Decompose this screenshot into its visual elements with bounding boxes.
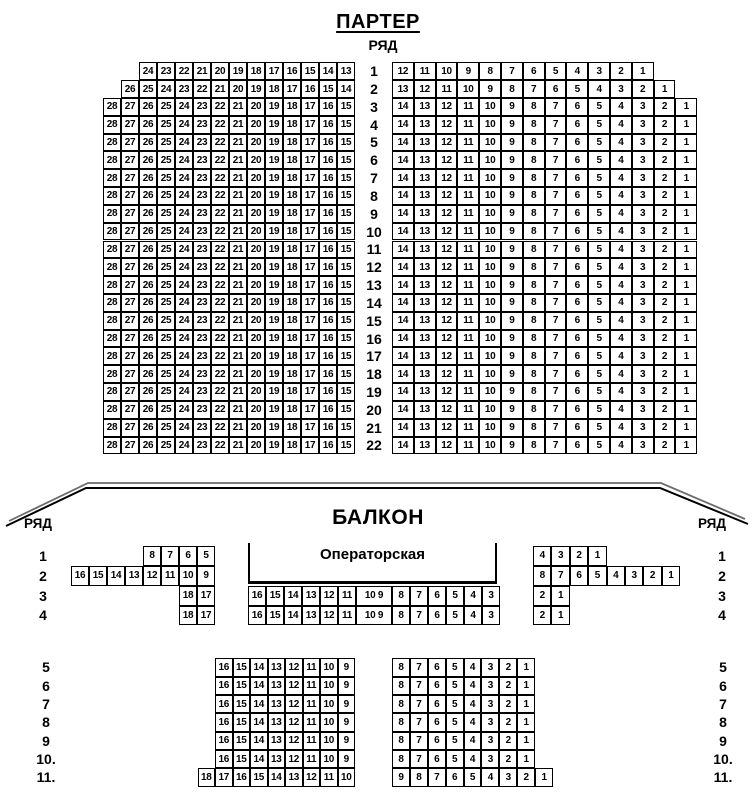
seat[interactable]: 1: [517, 658, 535, 676]
balcony-row-number-left: 9: [26, 732, 66, 750]
seat[interactable]: 3: [499, 768, 517, 786]
seat[interactable]: 7: [551, 566, 569, 586]
seat[interactable]: 9: [338, 750, 356, 768]
seat[interactable]: 18: [179, 586, 197, 606]
seat[interactable]: 8: [392, 677, 410, 695]
seat[interactable]: 13: [268, 732, 286, 750]
seat[interactable]: 12: [285, 658, 303, 676]
seat[interactable]: 1: [535, 768, 553, 786]
seat[interactable]: 1: [662, 566, 680, 586]
operator-booth-label: Операторская: [320, 546, 425, 563]
balcony-row-number-right: 2: [702, 566, 742, 586]
seat[interactable]: 17: [215, 768, 233, 786]
balcony-row-number-left: 1: [23, 546, 63, 566]
seat[interactable]: 5: [446, 713, 464, 731]
seat[interactable]: 9: [197, 566, 215, 586]
seat[interactable]: 4: [464, 658, 482, 676]
seat[interactable]: 5: [446, 750, 464, 768]
seat[interactable]: 5: [446, 658, 464, 676]
stage-divider: [0, 0, 756, 794]
seat[interactable]: 6: [428, 677, 446, 695]
seat[interactable]: 5: [464, 768, 482, 786]
balcony-row-right: 987654321: [392, 768, 553, 786]
seat[interactable]: 14: [250, 658, 268, 676]
seat[interactable]: 1: [517, 713, 535, 731]
seat[interactable]: 11: [303, 658, 321, 676]
seat[interactable]: 15: [233, 713, 251, 731]
operator-booth: Операторская: [248, 543, 497, 584]
seat[interactable]: 3: [481, 658, 499, 676]
balcony-row-number-right: 9: [703, 732, 743, 750]
seat[interactable]: 16: [71, 566, 89, 586]
seat[interactable]: 7: [410, 695, 428, 713]
balcony-row-left: 1817: [179, 586, 215, 606]
seat[interactable]: 16: [215, 695, 233, 713]
seat[interactable]: 3: [481, 750, 499, 768]
seat[interactable]: 13: [268, 658, 286, 676]
seat[interactable]: 15: [233, 677, 251, 695]
seat[interactable]: 1: [588, 546, 606, 566]
seat[interactable]: 14: [250, 695, 268, 713]
seat[interactable]: 13: [268, 695, 286, 713]
balcony-row-left: 161514131211109: [215, 658, 355, 676]
seat[interactable]: 15: [233, 750, 251, 768]
seat[interactable]: 4: [607, 566, 625, 586]
seat[interactable]: 6: [428, 586, 446, 606]
seat[interactable]: 15: [266, 586, 284, 606]
seat[interactable]: 10: [320, 750, 338, 768]
seat[interactable]: 14: [107, 566, 125, 586]
balcony-row-center: 16151413121110 9876543: [248, 586, 500, 606]
seat[interactable]: 8: [392, 713, 410, 731]
seat[interactable]: 1: [551, 586, 569, 606]
seat[interactable]: 15: [233, 695, 251, 713]
seat[interactable]: 6: [428, 732, 446, 750]
seat[interactable]: 9: [338, 695, 356, 713]
seat[interactable]: 16: [215, 750, 233, 768]
balcony-row-right: 87654321: [392, 732, 535, 750]
seat[interactable]: 7: [428, 768, 446, 786]
seat[interactable]: 2: [533, 606, 551, 626]
seat[interactable]: 2: [499, 695, 517, 713]
seat[interactable]: 11: [338, 586, 356, 606]
seat[interactable]: 10: [338, 768, 356, 786]
seat[interactable]: 6: [428, 750, 446, 768]
balcony-row-left: 161514131211109: [71, 566, 215, 586]
seat[interactable]: 10: [320, 713, 338, 731]
balcony-row-number-left: 2: [23, 566, 63, 586]
balcony-row-number-left: 8: [26, 713, 66, 731]
seat[interactable]: 14: [250, 750, 268, 768]
seat[interactable]: 6: [570, 566, 588, 586]
seat[interactable]: 6: [428, 658, 446, 676]
seat[interactable]: 4: [464, 695, 482, 713]
seat[interactable]: 13: [268, 677, 286, 695]
seat[interactable]: 13: [285, 768, 303, 786]
seat[interactable]: 4: [464, 713, 482, 731]
balcony-row-left: 161514131211109: [215, 713, 355, 731]
seat[interactable]: 3: [481, 695, 499, 713]
balcony-row-right: 87654321: [392, 658, 535, 676]
seat[interactable]: 1: [517, 750, 535, 768]
seat[interactable]: 5: [446, 606, 464, 626]
balcony-row-right: 21: [533, 606, 570, 626]
balcony-row-number-right: 11.: [703, 768, 743, 786]
seat[interactable]: 4: [464, 750, 482, 768]
seat[interactable]: 2: [570, 546, 588, 566]
seat[interactable]: 15: [89, 566, 107, 586]
seat[interactable]: 3: [481, 713, 499, 731]
seat[interactable]: 8: [533, 566, 551, 586]
seat[interactable]: 6: [446, 768, 464, 786]
seat[interactable]: 10 9: [356, 586, 392, 606]
seat[interactable]: 5: [588, 566, 606, 586]
seat[interactable]: 6: [179, 546, 197, 566]
seat[interactable]: 17: [197, 606, 215, 626]
seat[interactable]: 11: [161, 566, 179, 586]
seat[interactable]: 1: [517, 677, 535, 695]
balcony-row-left: 181716151413121110: [198, 768, 356, 786]
seat[interactable]: 12: [285, 732, 303, 750]
seat[interactable]: 2: [533, 586, 551, 606]
seat[interactable]: 9: [338, 677, 356, 695]
seat[interactable]: 12: [303, 768, 321, 786]
seat[interactable]: 10 9: [356, 606, 392, 626]
balcony-row-number-left: 3: [23, 586, 63, 606]
seat[interactable]: 16: [248, 606, 266, 626]
seat[interactable]: 9: [338, 658, 356, 676]
seat[interactable]: 2: [499, 750, 517, 768]
seat[interactable]: 12: [320, 586, 338, 606]
balcony-row-number-left: 5: [26, 658, 66, 676]
seat[interactable]: 16: [215, 713, 233, 731]
seat[interactable]: 1: [517, 732, 535, 750]
balcony-row-right: 21: [533, 586, 570, 606]
seat[interactable]: 4: [481, 768, 499, 786]
seat[interactable]: 7: [410, 750, 428, 768]
seat[interactable]: 6: [428, 695, 446, 713]
balcony-row-right: 87654321: [392, 695, 535, 713]
balcony-row-number-right: 7: [703, 695, 743, 713]
seat[interactable]: 10: [179, 566, 197, 586]
seat[interactable]: 12: [285, 695, 303, 713]
seat[interactable]: 13: [268, 713, 286, 731]
balcony-row-number-left: 7: [26, 695, 66, 713]
balcony-row-left: 8765: [143, 546, 215, 566]
seat[interactable]: 12: [143, 566, 161, 586]
seat[interactable]: 13: [302, 606, 320, 626]
seat[interactable]: 1: [551, 606, 569, 626]
seat[interactable]: 14: [250, 677, 268, 695]
seat[interactable]: 1: [517, 695, 535, 713]
seat[interactable]: 11: [303, 750, 321, 768]
seat[interactable]: 7: [410, 586, 428, 606]
seat[interactable]: 12: [285, 750, 303, 768]
seat[interactable]: 5: [446, 677, 464, 695]
seat[interactable]: 8: [392, 695, 410, 713]
seat[interactable]: 11: [303, 677, 321, 695]
seat[interactable]: 7: [410, 658, 428, 676]
seat[interactable]: 9: [338, 713, 356, 731]
balcony-row-left: 161514131211109: [215, 695, 355, 713]
seat[interactable]: 16: [215, 658, 233, 676]
seat[interactable]: 12: [285, 713, 303, 731]
seat[interactable]: 5: [197, 546, 215, 566]
seat[interactable]: 7: [161, 546, 179, 566]
seat[interactable]: 11: [303, 713, 321, 731]
seat[interactable]: 11: [320, 768, 338, 786]
seat[interactable]: 16: [215, 732, 233, 750]
seat[interactable]: 7: [410, 606, 428, 626]
seat[interactable]: 9: [338, 732, 356, 750]
seat[interactable]: 6: [428, 713, 446, 731]
seat[interactable]: 12: [285, 677, 303, 695]
seat[interactable]: 3: [551, 546, 569, 566]
seat[interactable]: 14: [250, 713, 268, 731]
balcony-row-right: 87654321: [392, 750, 535, 768]
balcony-row-right: 87654321: [392, 677, 535, 695]
seat[interactable]: 8: [392, 606, 410, 626]
seat[interactable]: 12: [320, 606, 338, 626]
balcony-row-number-right: 1: [702, 546, 742, 566]
seat[interactable]: 8: [410, 768, 428, 786]
seat[interactable]: 13: [125, 566, 143, 586]
seat[interactable]: 4: [464, 677, 482, 695]
seat[interactable]: 15: [233, 732, 251, 750]
seat[interactable]: 8: [392, 658, 410, 676]
seat[interactable]: 16: [248, 586, 266, 606]
seat[interactable]: 7: [410, 732, 428, 750]
balcony-row-number-left: 10.: [26, 750, 66, 768]
seat[interactable]: 4: [464, 732, 482, 750]
seat[interactable]: 3: [625, 566, 643, 586]
balcony-row-center: 16151413121110 9876543: [248, 606, 500, 626]
seat[interactable]: 9: [392, 768, 410, 786]
balcony-row-left: 161514131211109: [215, 677, 355, 695]
seat[interactable]: 18: [179, 606, 197, 626]
seat[interactable]: 18: [198, 768, 216, 786]
seat[interactable]: 14: [284, 586, 302, 606]
seat[interactable]: 8: [392, 586, 410, 606]
seat[interactable]: 2: [643, 566, 661, 586]
seat[interactable]: 3: [482, 606, 500, 626]
balcony-row-number-left: 6: [26, 677, 66, 695]
seat[interactable]: 17: [197, 586, 215, 606]
seat[interactable]: 4: [464, 586, 482, 606]
seat[interactable]: 15: [250, 768, 268, 786]
seat[interactable]: 10: [320, 677, 338, 695]
balcony-row-right: 87654321: [533, 566, 680, 586]
seat[interactable]: 7: [410, 677, 428, 695]
balcony-row-right: 87654321: [392, 713, 535, 731]
balcony-row-number-right: 5: [703, 658, 743, 676]
balcony-row-left: 161514131211109: [215, 732, 355, 750]
balcony-row-number-right: 4: [702, 606, 742, 626]
balcony-row-left: 1817: [179, 606, 215, 626]
balcony-title: БАЛКОН: [0, 506, 756, 530]
seat[interactable]: 10: [320, 658, 338, 676]
seat[interactable]: 13: [302, 586, 320, 606]
seat[interactable]: 2: [499, 677, 517, 695]
seat[interactable]: 2: [499, 713, 517, 731]
seating-chart: ПАРТЕР РЯД 24232221201918171615141311211…: [0, 0, 756, 794]
seat[interactable]: 11: [338, 606, 356, 626]
seat[interactable]: 13: [268, 750, 286, 768]
seat[interactable]: 2: [517, 768, 535, 786]
seat[interactable]: 10: [320, 732, 338, 750]
seat[interactable]: 8: [143, 546, 161, 566]
balcony-row-left: 161514131211109: [215, 750, 355, 768]
balcony-row-header-right: РЯД: [691, 516, 733, 531]
seat[interactable]: 5: [446, 732, 464, 750]
seat[interactable]: 14: [268, 768, 286, 786]
seat[interactable]: 11: [303, 732, 321, 750]
balcony-row-number-right: 8: [703, 713, 743, 731]
seat[interactable]: 3: [481, 677, 499, 695]
seat[interactable]: 3: [481, 732, 499, 750]
seat[interactable]: 15: [266, 606, 284, 626]
seat[interactable]: 16: [233, 768, 251, 786]
seat[interactable]: 5: [446, 695, 464, 713]
seat[interactable]: 8: [392, 750, 410, 768]
seat[interactable]: 4: [533, 546, 551, 566]
seat[interactable]: 4: [464, 606, 482, 626]
balcony-row-number-right: 10.: [703, 750, 743, 768]
seat[interactable]: 14: [250, 732, 268, 750]
seat[interactable]: 11: [303, 695, 321, 713]
seat[interactable]: 14: [284, 606, 302, 626]
seat[interactable]: 7: [410, 713, 428, 731]
balcony-row-number-right: 3: [702, 586, 742, 606]
seat[interactable]: 2: [499, 732, 517, 750]
seat[interactable]: 16: [215, 677, 233, 695]
seat[interactable]: 10: [320, 695, 338, 713]
balcony-row-number-left: 11.: [26, 768, 66, 786]
seat[interactable]: 5: [446, 586, 464, 606]
balcony-row-right: 4321: [533, 546, 607, 566]
balcony-row-number-left: 4: [23, 606, 63, 626]
balcony-row-number-right: 6: [703, 677, 743, 695]
seat[interactable]: 8: [392, 732, 410, 750]
seat[interactable]: 3: [482, 586, 500, 606]
seat[interactable]: 6: [428, 606, 446, 626]
seat[interactable]: 15: [233, 658, 251, 676]
seat[interactable]: 2: [499, 658, 517, 676]
